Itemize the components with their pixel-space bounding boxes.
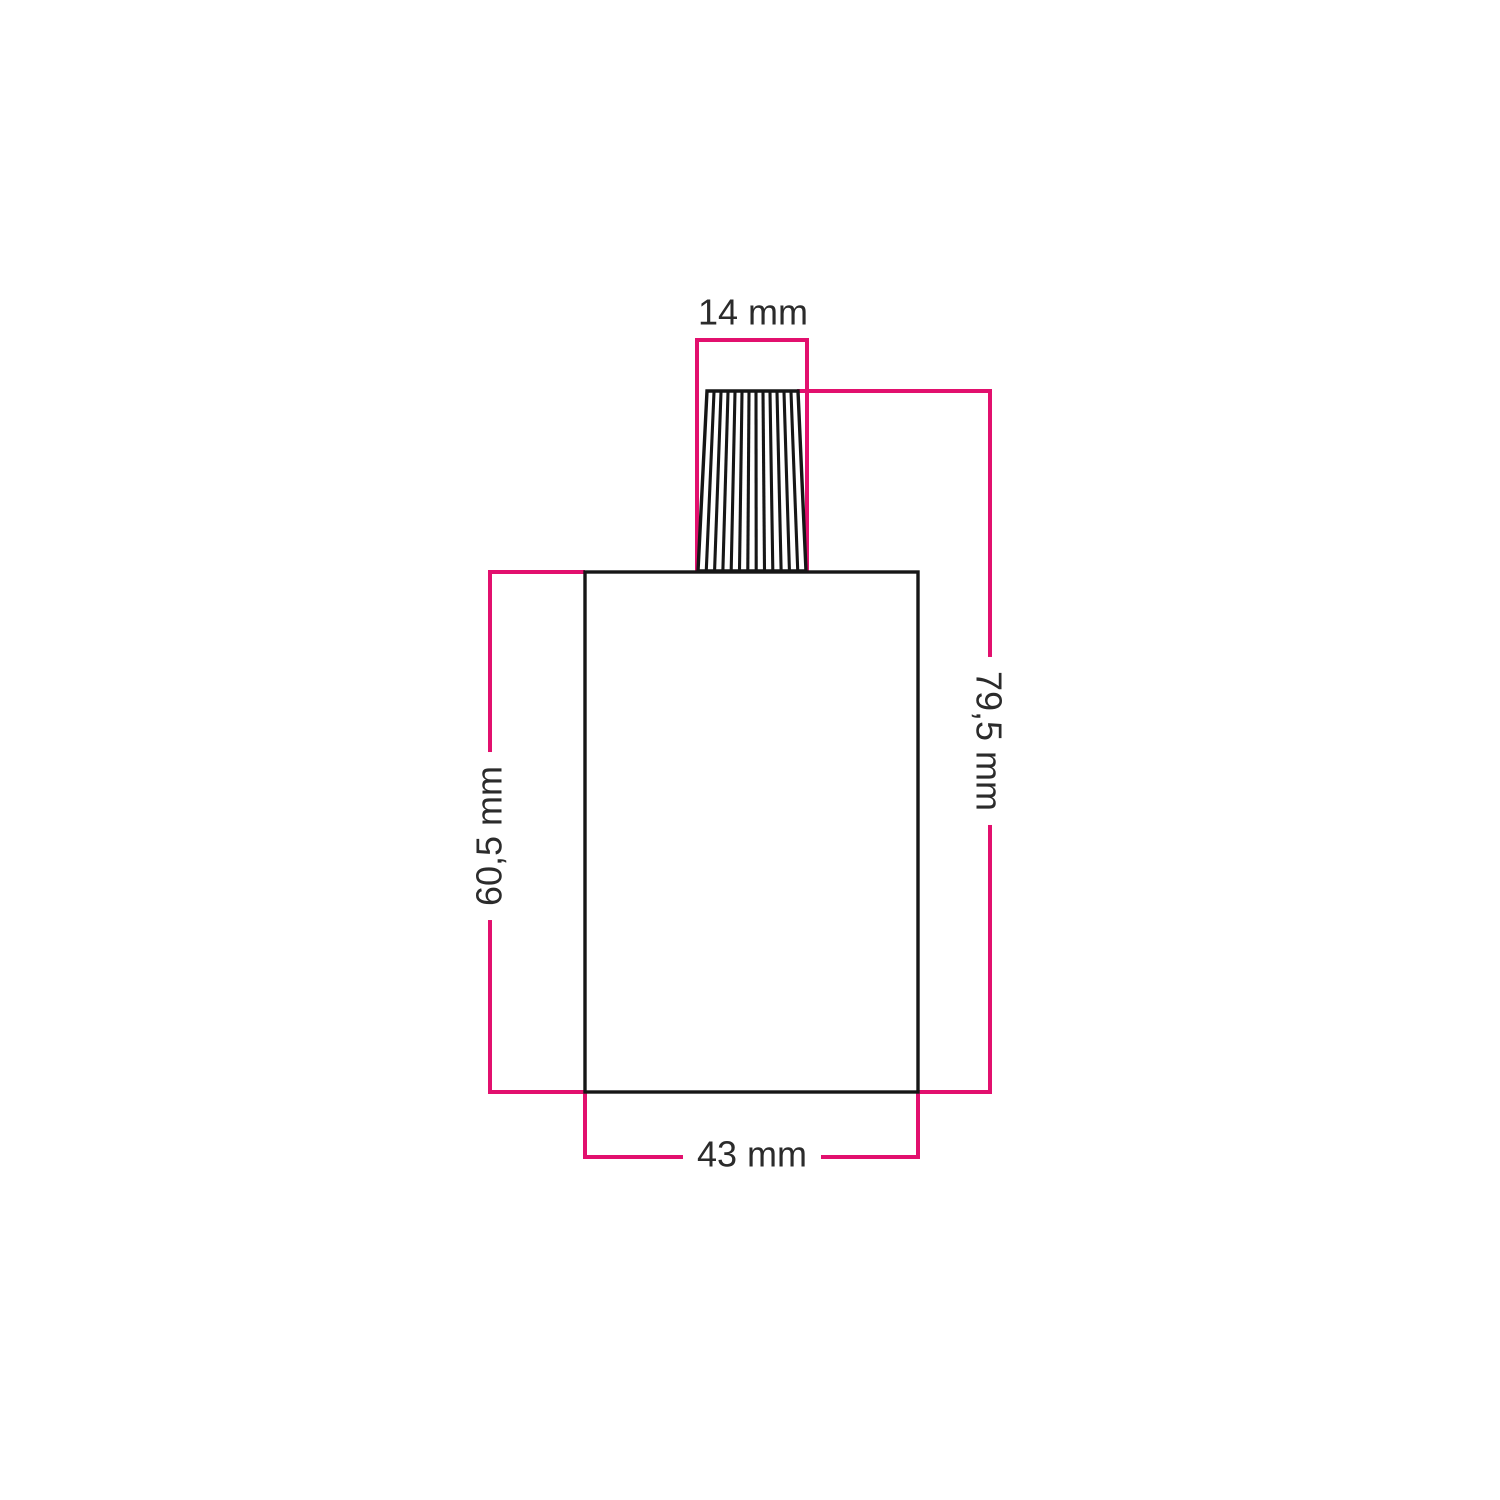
dimension-label-bottom: 43 mm — [683, 1133, 821, 1174]
cable-grip-rib — [763, 392, 765, 570]
dimension-label-right: 79,5 mm — [968, 657, 1009, 825]
diagram-linework — [0, 0, 1500, 1500]
cable-grip-rib — [748, 392, 749, 570]
dimension-label-left: 60,5 mm — [468, 752, 509, 920]
dimension-label-top: 14 mm — [684, 291, 822, 332]
socket-body-outline — [585, 572, 918, 1092]
dimension-diagram: 14 mm 79,5 mm 60,5 mm 43 mm — [0, 0, 1500, 1500]
